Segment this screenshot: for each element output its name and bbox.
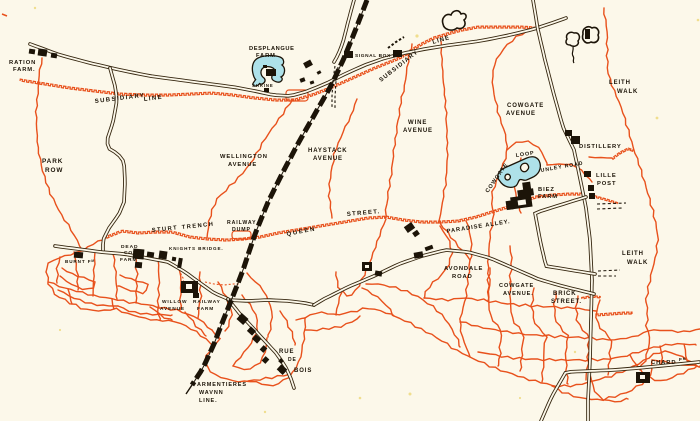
svg-text:ROAD: ROAD (452, 274, 473, 280)
svg-text:STREET.: STREET. (551, 299, 582, 305)
svg-text:ROW: ROW (45, 167, 63, 174)
svg-text:DEAD: DEAD (121, 244, 138, 250)
svg-text:BURNT Fᴹ: BURNT Fᴹ (65, 259, 95, 264)
svg-text:AVENUE.: AVENUE. (503, 291, 534, 297)
svg-text:SIGNAL BOX: SIGNAL BOX (355, 53, 391, 59)
svg-text:FARM: FARM (256, 53, 276, 59)
svg-text:ARMENTIERES: ARMENTIERES (197, 382, 247, 388)
svg-text:WALK: WALK (617, 89, 638, 95)
svg-text:RAILWAY: RAILWAY (227, 220, 256, 226)
svg-text:FARM: FARM (120, 257, 137, 263)
svg-text:HAYSTACK: HAYSTACK (308, 148, 348, 154)
svg-text:LILLE: LILLE (596, 173, 617, 179)
svg-text:FARM: FARM (197, 306, 214, 312)
svg-text:AVONDALE: AVONDALE (444, 266, 483, 272)
svg-text:DISTILLERY: DISTILLERY (579, 144, 622, 150)
svg-text:RUE: RUE (279, 349, 294, 355)
svg-text:BIEZ: BIEZ (538, 187, 555, 193)
svg-text:KNIGHTS BRIDGE.: KNIGHTS BRIDGE. (169, 246, 224, 251)
svg-text:PARK: PARK (42, 158, 63, 165)
svg-text:Fᴹ: Fᴹ (679, 357, 686, 363)
svg-text:WALK: WALK (627, 260, 648, 266)
svg-text:COW: COW (124, 250, 139, 256)
svg-text:LEITH: LEITH (609, 80, 631, 86)
svg-text:BOIS: BOIS (294, 368, 312, 374)
svg-text:AVENUE: AVENUE (403, 128, 433, 134)
svg-text:POST: POST (597, 181, 616, 187)
svg-text:SHRINE: SHRINE (252, 83, 274, 88)
svg-text:COWGATE: COWGATE (499, 283, 534, 289)
svg-text:DESPLANGUE: DESPLANGUE (249, 46, 295, 52)
svg-text:WILLOW: WILLOW (162, 299, 187, 305)
svg-text:AVENUE: AVENUE (160, 306, 185, 312)
svg-text:DE: DE (288, 357, 297, 363)
svg-text:RATION: RATION (9, 60, 36, 66)
svg-text:AVENUE: AVENUE (506, 111, 536, 117)
svg-text:WELLINGTON: WELLINGTON (220, 154, 268, 160)
svg-text:COWGATE: COWGATE (507, 103, 544, 109)
svg-text:WINE: WINE (408, 120, 427, 126)
svg-text:WAVNN: WAVNN (199, 390, 224, 396)
svg-text:FARM: FARM (538, 194, 558, 200)
svg-text:LEITH: LEITH (622, 251, 644, 257)
svg-text:AVENUE: AVENUE (313, 156, 343, 162)
svg-text:AVENUE: AVENUE (228, 162, 257, 168)
svg-text:CHARD: CHARD (651, 360, 676, 366)
svg-text:RAILWAY: RAILWAY (193, 299, 221, 305)
svg-text:FARM.: FARM. (13, 67, 36, 73)
svg-text:BRICK: BRICK (553, 291, 577, 297)
svg-text:LINE.: LINE. (199, 398, 218, 404)
svg-text:DUMP: DUMP (232, 227, 251, 233)
